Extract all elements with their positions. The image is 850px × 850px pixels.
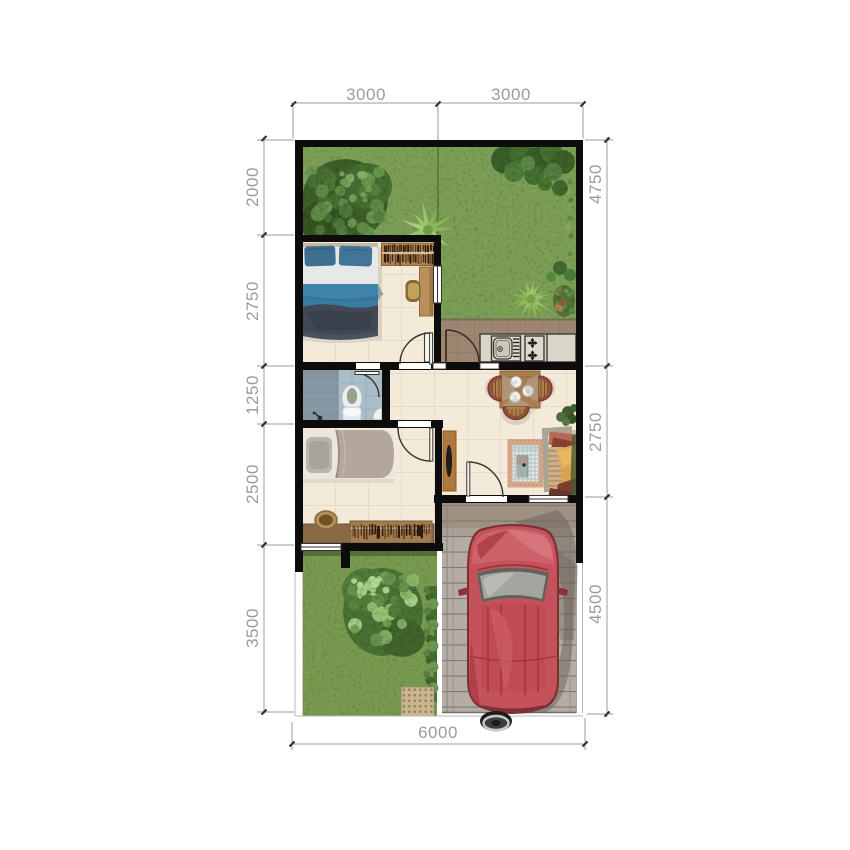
svg-text:3000: 3000 [491, 85, 531, 104]
svg-text:2000: 2000 [243, 167, 262, 207]
svg-text:6000: 6000 [418, 723, 458, 742]
svg-text:3500: 3500 [243, 608, 262, 648]
svg-text:2750: 2750 [586, 412, 605, 452]
svg-text:4500: 4500 [586, 584, 605, 624]
svg-text:4750: 4750 [586, 164, 605, 204]
svg-text:2750: 2750 [243, 281, 262, 321]
svg-text:3000: 3000 [346, 85, 386, 104]
svg-text:1250: 1250 [243, 375, 262, 415]
svg-text:2500: 2500 [243, 464, 262, 504]
